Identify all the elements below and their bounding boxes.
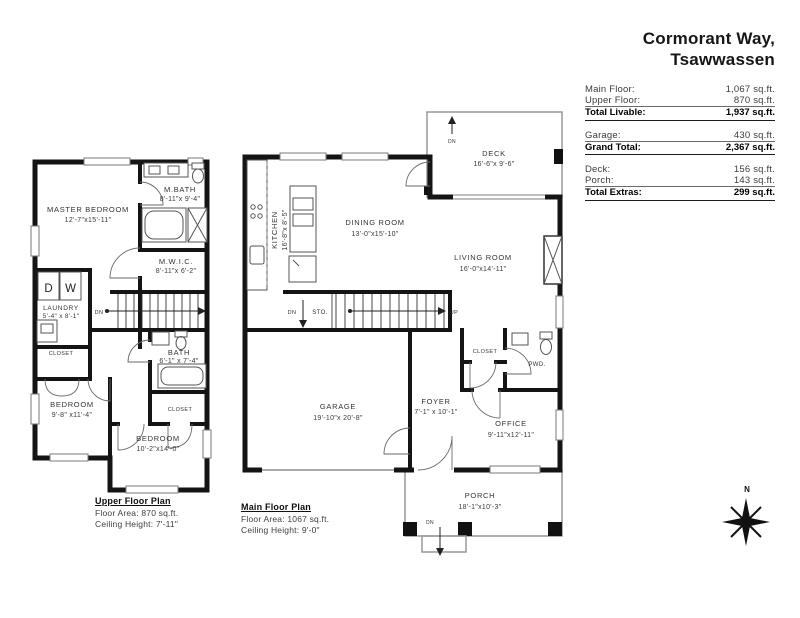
dryer-label: D [44,283,52,295]
main-floor-plan: DN DN [245,112,563,556]
compass-star-icon [722,498,770,546]
upper-plan-area: Floor Area: 870 sq.ft. [95,508,178,519]
room-dims-porch: 18'-1"x10'-3" [458,504,501,511]
porch-structure: DN [403,470,562,556]
north-label: N [744,485,750,494]
washer-label: W [65,283,76,295]
arrow-down-icon [299,320,307,328]
room-dims-bedroom1: 9'-8" x11'-4" [52,412,93,419]
main-plan-area: Floor Area: 1067 sq.ft. [241,514,329,525]
room-dims-kitchen: 16'-8"x 8'-5" [282,209,289,250]
toilet-icon [541,340,552,355]
laundry-sink-icon [37,320,57,342]
front-door-arc [418,436,452,470]
room-label-closet1: CLOSET [49,351,74,357]
room-dims-mwic: 8'-11"x 6'-2" [156,268,197,275]
room-label-office: OFFICE [495,419,527,428]
door-arc [110,248,140,278]
room-label-foyer: FOYER [421,397,450,406]
door-arc [128,340,150,362]
stairs-down-label: DN [95,310,104,316]
floor-plan-sheet: Cormorant Way, Tsawwassen Main Floor: 1,… [0,0,800,618]
toilet-tank-icon [540,332,552,339]
room-dims-deck: 16'-6"x 9'-6" [473,161,514,168]
room-dims-living: 16'-0"x14'-11" [460,266,507,273]
window [203,430,211,458]
sliding-door-opening [453,192,545,201]
porch-down-label: DN [426,520,434,526]
window [126,486,178,493]
room-label-kitchen: KITCHEN [270,211,279,249]
main-plan-ceiling: Ceiling Height: 9'-0" [241,525,329,536]
sink-icon [152,332,169,345]
door-arc [88,379,110,401]
room-label-bath: BATH [168,348,190,357]
upper-plan-title: Upper Floor Plan [95,496,178,506]
room-label-mwic: M.W.I.C. [159,257,193,266]
porch-post [548,522,562,536]
room-dims-laundry: 5'-4" x 8'-1" [43,313,80,320]
fireplace-icon [544,236,562,284]
arrow-right-icon [438,307,446,315]
room-label-bedroom1: BEDROOM [50,400,94,409]
room-label-porch: PORCH [465,491,496,500]
door-arc [384,428,410,454]
room-dims-garage: 19'-10"x 20'-8" [313,415,363,422]
deck-post [554,149,563,164]
upper-plan-caption: Upper Floor Plan Floor Area: 870 sq.ft. … [95,496,178,529]
window [490,466,540,473]
window [31,394,39,424]
main-plan-caption: Main Floor Plan Floor Area: 1067 sq.ft. … [241,502,329,535]
fridge-icon [289,256,316,282]
room-label-closet2: CLOSET [168,407,193,413]
room-dims-office: 9'-11"x12'-11" [488,432,534,439]
arrow-up-icon [448,116,456,124]
porch-post [458,522,472,536]
upper-plan-ceiling: Ceiling Height: 7'-11" [95,519,178,530]
main-plan-title: Main Floor Plan [241,502,329,512]
room-label-closet: CLOSET [473,349,498,355]
upper-floor-plan: DN D W [31,158,211,493]
room-dims-bedroom2: 10'-2"x14'-0" [136,446,179,453]
kitchen-counter [247,160,267,290]
room-label-master-bedroom: MASTER BEDROOM [47,205,129,214]
room-label-bedroom2: BEDROOM [136,434,180,443]
room-label-living: LIVING ROOM [454,253,512,262]
door-arc [472,390,500,418]
compass-rose: N [722,485,770,546]
window [50,454,88,461]
sink-icon [512,333,528,345]
kitchen-island [290,186,316,252]
window [84,158,130,165]
room-dims-foyer: 7'-1" x 10'-1" [414,409,458,416]
porch-outline [405,470,562,536]
room-dims-master-bedroom: 12'-7"x15'-11" [65,217,112,224]
toilet-tank-icon [192,163,204,169]
porch-post [403,522,417,536]
window [31,226,39,256]
room-label-laundry: LAUNDRY [43,305,79,312]
closet-door-arcs [45,379,79,396]
window [556,296,563,328]
main-interior-walls [245,292,560,470]
room-label-mbath: M.BATH [164,185,196,194]
window [342,153,388,160]
room-label-storage: STO. [312,310,328,316]
stairs-down-label: DN [288,310,297,316]
room-label-deck: DECK [482,149,506,158]
vanity-counter-icon [144,163,188,177]
room-dims-dining: 13'-0"x15'-10" [351,231,398,238]
window [280,153,326,160]
room-dims-bath: 6'-1" x 7'-4" [159,358,198,365]
stairs-upper: DN [95,294,206,328]
door-arc [470,362,496,388]
porch-steps [422,536,466,552]
room-label-powder: PWD. [528,362,545,368]
room-label-dining: DINING ROOM [345,218,404,227]
stairs-up-label: UP [450,310,458,316]
door-arc [505,348,531,374]
toilet-icon [193,169,204,183]
room-label-garage: GARAGE [320,402,356,411]
window [556,410,563,440]
room-dims-mbath: 8'-11"x 9'-4" [160,196,201,203]
deck-down-label: DN [448,139,456,145]
